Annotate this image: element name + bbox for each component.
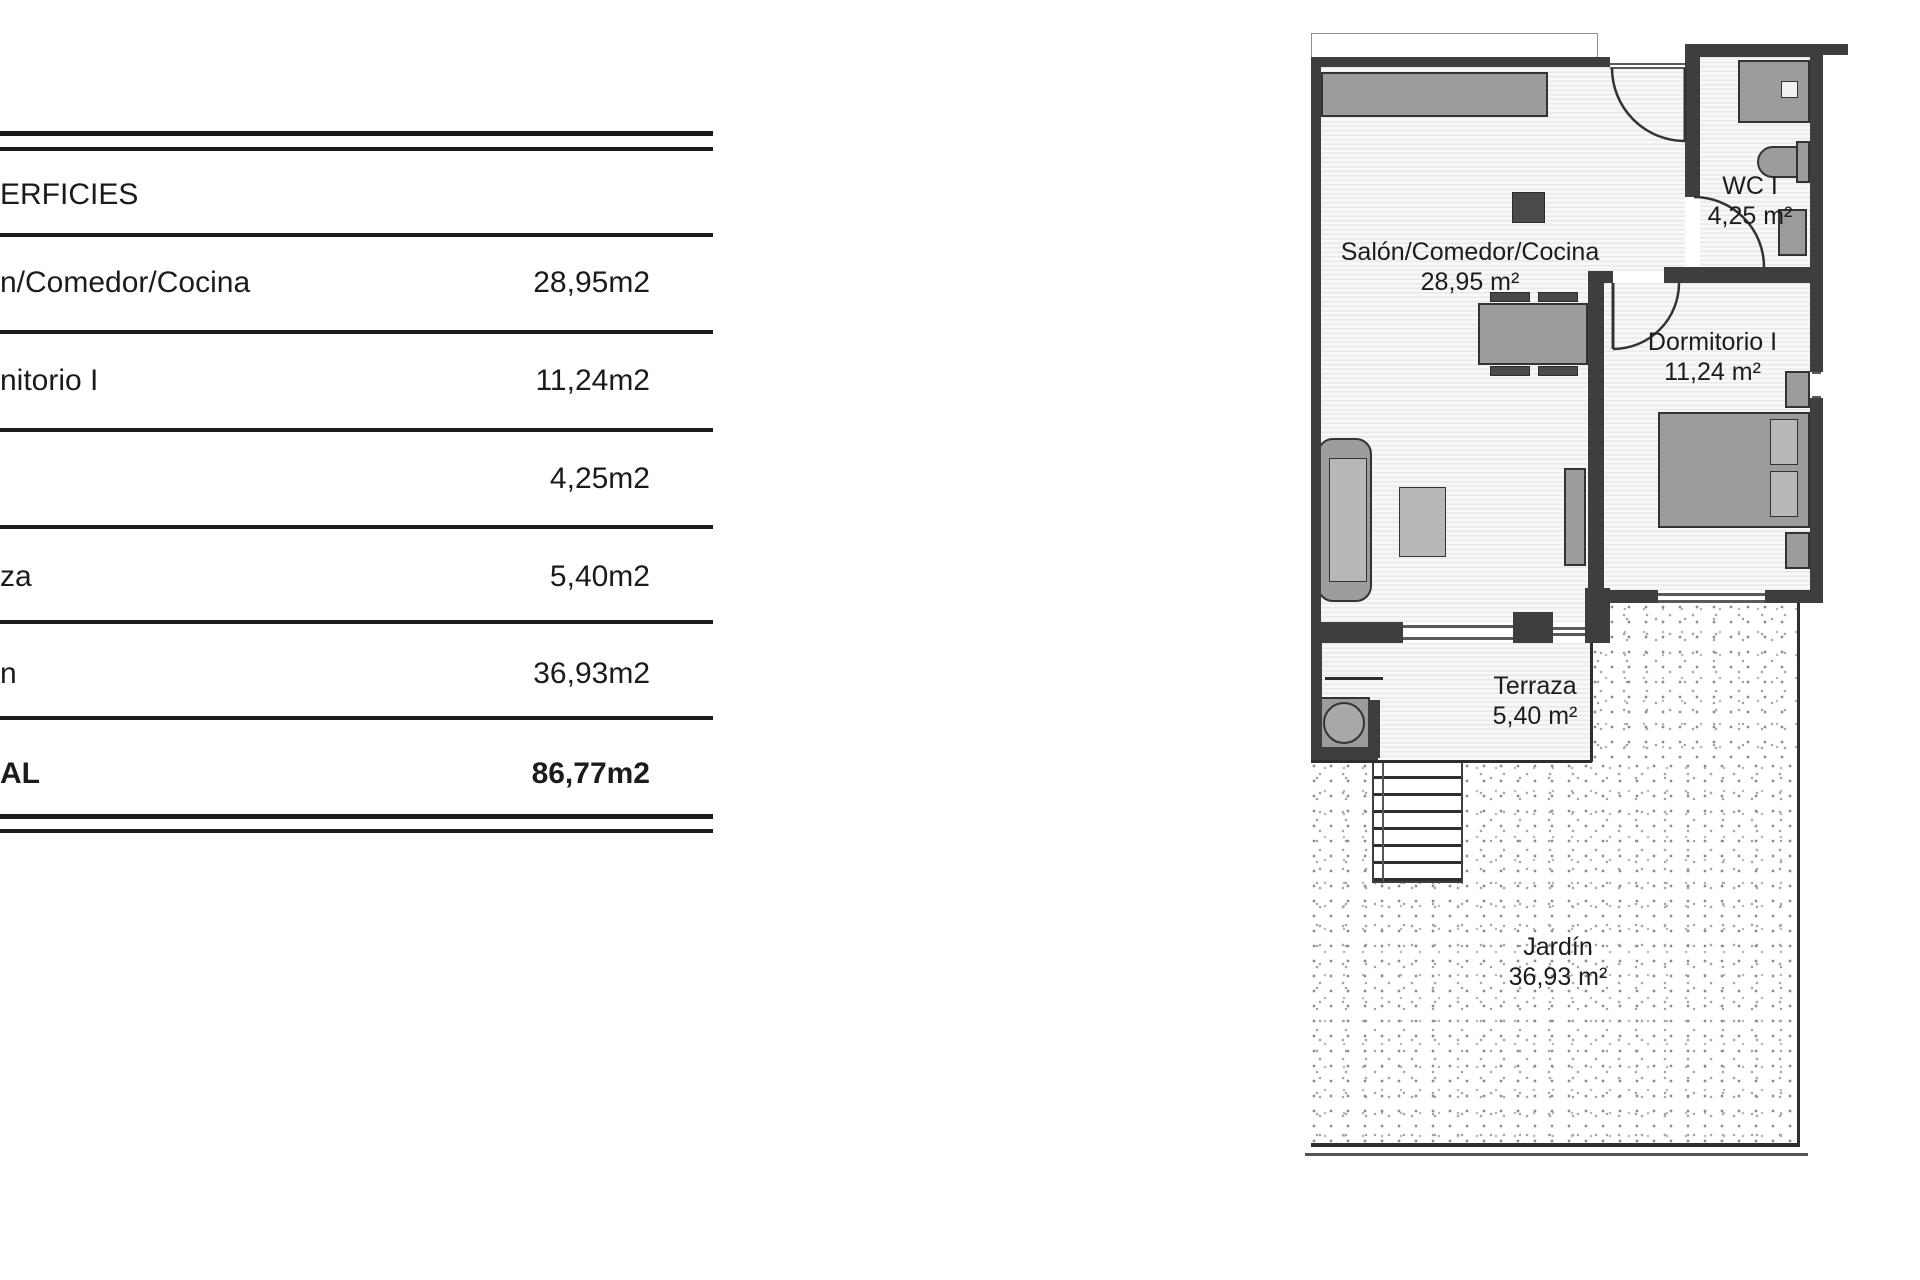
room-area: 4,25 m² <box>1690 202 1810 232</box>
room-name: Jardín <box>1478 933 1638 963</box>
room-name: Dormitorio I <box>1610 328 1815 358</box>
wc-label: WC I 4,25 m² <box>1690 172 1810 231</box>
door-arc <box>1612 68 1685 141</box>
room-area: 11,24 m² <box>1610 358 1815 388</box>
dormitorio-label: Dormitorio I 11,24 m² <box>1610 328 1815 387</box>
room-name: Salón/Comedor/Cocina <box>1330 238 1610 268</box>
terraza-label: Terraza 5,40 m² <box>1460 672 1610 731</box>
room-area: 36,93 m² <box>1478 963 1638 993</box>
salon-label: Salón/Comedor/Cocina 28,95 m² <box>1330 238 1610 297</box>
door-arcs-overlay <box>0 0 1920 1280</box>
room-area: 28,95 m² <box>1330 268 1610 298</box>
room-name: WC I <box>1690 172 1810 202</box>
room-name: Terraza <box>1460 672 1610 702</box>
jardin-label: Jardín 36,93 m² <box>1478 933 1638 992</box>
room-area: 5,40 m² <box>1460 702 1610 732</box>
